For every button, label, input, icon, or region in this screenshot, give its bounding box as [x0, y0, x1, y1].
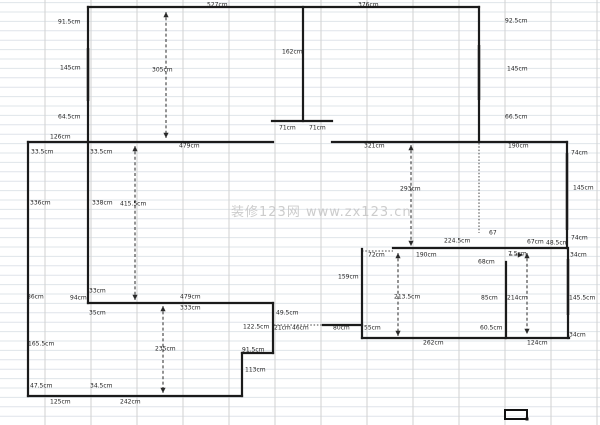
arrowhead — [160, 388, 165, 393]
dimension-label: 33.5cm — [90, 149, 113, 156]
dimension-label: 479cm — [179, 143, 200, 150]
dimension-label: 49.5cm — [276, 310, 299, 317]
dimension-label: 145cm — [573, 185, 594, 192]
dimension-label: 113cm — [245, 367, 266, 374]
dimension-label: 47.5cm — [30, 383, 53, 390]
dimension-label: 64.5cm — [58, 114, 81, 121]
dimension-label: 74cm — [571, 150, 588, 157]
dimension-label: 336cm — [30, 200, 51, 207]
dimension-label: 55cm — [364, 325, 381, 332]
dimension-label: 85cm — [481, 295, 498, 302]
dimension-label: 91.5cm — [242, 347, 265, 354]
dimension-label: 333cm — [180, 305, 201, 312]
dimension-label: 33.5cm — [31, 149, 54, 156]
dimension-label: 86cm — [27, 294, 44, 301]
dimension-label: 80cm — [333, 325, 350, 332]
dimension-label: 235cm — [155, 346, 176, 353]
dimension-label: 46cm — [292, 325, 309, 332]
dimension-label: 376cm — [358, 2, 379, 9]
dimension-label: 165.5cm — [28, 341, 54, 348]
dimension-label: 35cm — [89, 310, 106, 317]
dimension-label: 48.5cm — [546, 240, 569, 247]
dimension-label: 479cm — [180, 294, 201, 301]
dimension-label: 214cm — [507, 295, 528, 302]
dimension-label: 159cm — [338, 274, 359, 281]
dimension-label: 124cm — [527, 340, 548, 347]
dimension-label: 293cm — [400, 186, 421, 193]
arrowhead — [160, 306, 165, 311]
dimension-label: 415.5cm — [120, 201, 146, 208]
dimension-label: 71cm — [309, 125, 326, 132]
dimension-label: 527cm — [207, 2, 228, 9]
arrowhead — [395, 253, 400, 258]
dimension-label: 242cm — [120, 399, 141, 406]
dimension-label: 125cm — [50, 399, 71, 406]
dimension-label: 94cm — [70, 295, 87, 302]
dimension-label: 162cm — [282, 49, 303, 56]
dimension-label: 224.5cm — [444, 238, 470, 245]
dimension-label: 34cm — [570, 252, 587, 259]
dimension-label: 74cm — [571, 235, 588, 242]
dimension-label: 72cm — [368, 252, 385, 259]
dimension-label: 213.5cm — [394, 294, 420, 301]
dimension-label: 66.5cm — [505, 114, 528, 121]
floor-plan-svg: 装修123网 www.zx123.cn527cm376cm91.5cm145cm… — [0, 0, 600, 425]
selected-cell-fill-handle — [526, 418, 529, 421]
dimension-label: 145.5cm — [569, 295, 595, 302]
dimension-label: 34cm — [569, 332, 586, 339]
dimension-label: 190cm — [508, 143, 529, 150]
arrowhead — [163, 12, 168, 17]
dimension-label: 68cm — [478, 259, 495, 266]
dimension-label: 145cm — [60, 65, 81, 72]
dimension-label: 21cm — [274, 325, 291, 332]
watermark-text: 装修123网 www.zx123.cn — [231, 205, 412, 220]
dimension-label: 34.5cm — [90, 383, 113, 390]
dimension-label: 91.5cm — [58, 19, 81, 26]
dimension-label: 67cm — [527, 239, 544, 246]
dimension-label: 262cm — [423, 340, 444, 347]
dimension-label: 71cm — [279, 125, 296, 132]
dimension-label: 122.5cm — [243, 324, 269, 331]
dimension-label: 7.5cm — [508, 251, 527, 258]
arrowhead — [163, 133, 168, 138]
dimension-label: 67 — [489, 230, 497, 237]
dimension-label: 145cm — [507, 66, 528, 73]
dimension-label: 321cm — [364, 143, 385, 150]
dimension-label: 60.5cm — [480, 325, 503, 332]
dimension-label: 126cm — [50, 134, 71, 141]
selected-cell — [505, 410, 527, 419]
dimension-label: 305cm — [152, 67, 173, 74]
dimension-label: 33cm — [89, 288, 106, 295]
floor-plan-page: 装修123网 www.zx123.cn527cm376cm91.5cm145cm… — [0, 0, 600, 425]
arrowhead — [395, 331, 400, 336]
dimension-label: 338cm — [92, 200, 113, 207]
dimension-label: 92.5cm — [505, 18, 528, 25]
dimension-label: 190cm — [416, 252, 437, 259]
